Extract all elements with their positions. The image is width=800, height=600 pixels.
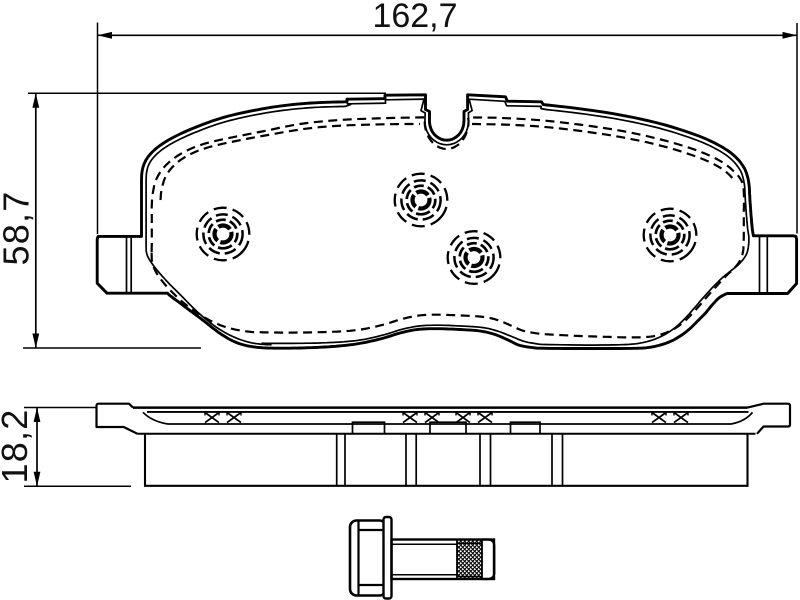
svg-text:162,7: 162,7 xyxy=(372,0,457,35)
svg-text:58,7: 58,7 xyxy=(0,191,37,266)
svg-text:18,2: 18,2 xyxy=(0,409,35,484)
